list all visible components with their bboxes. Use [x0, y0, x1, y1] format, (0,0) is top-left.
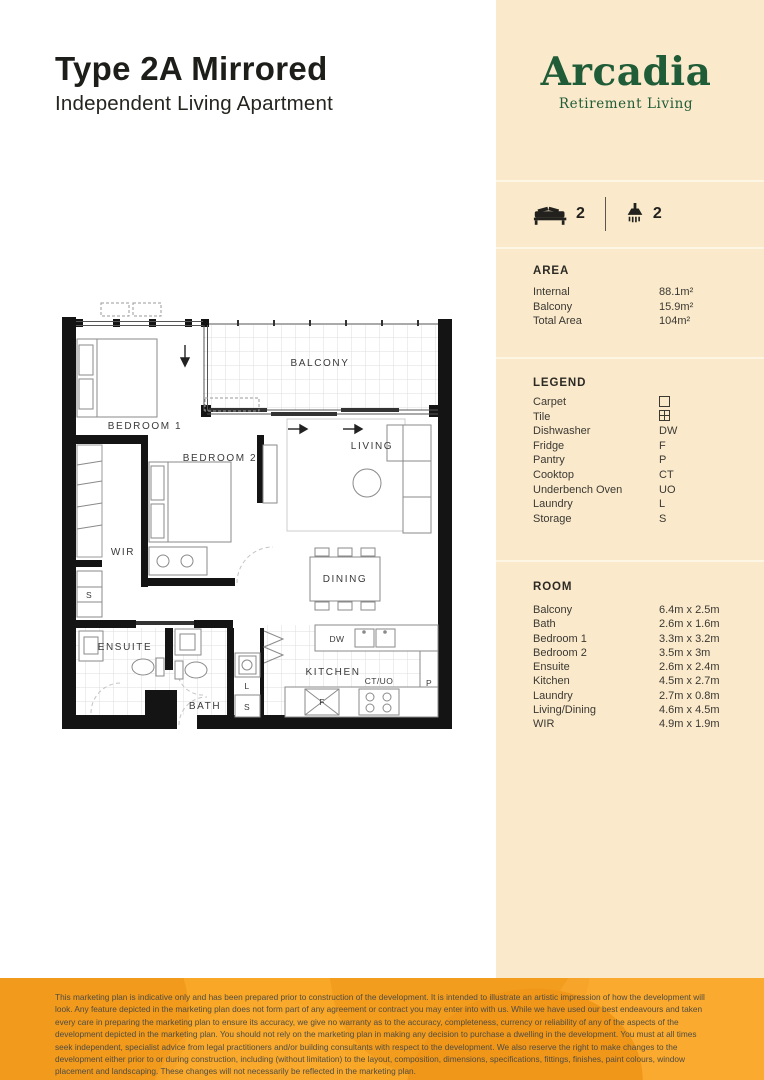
plan-label-bedroom2: BEDROOM 2	[183, 453, 257, 464]
brand-logo: Arcadia	[492, 50, 760, 94]
tile-swatch-icon	[659, 410, 670, 421]
plan-label-dw: DW	[330, 634, 345, 644]
disclaimer-text: This marketing plan is indicative only a…	[0, 978, 764, 1078]
plan-label-storage-wir: S	[86, 590, 92, 600]
area-row: Internal 88.1m²	[533, 285, 764, 300]
bed-bath-stats: 2 2	[496, 180, 764, 247]
room-row: WIR 4.9m x 1.9m	[533, 717, 764, 731]
plan-label-fridge: F	[319, 697, 325, 707]
plan-label-balcony: BALCONY	[291, 358, 350, 369]
footer: This marketing plan is indicative only a…	[0, 978, 764, 1080]
shower-icon	[624, 202, 646, 226]
room-row: Bath 2.6m x 1.6m	[533, 617, 764, 631]
room-row: Bedroom 2 3.5m x 3m	[533, 646, 764, 660]
room-row: Laundry 2.7m x 0.8m	[533, 689, 764, 703]
legend-row: Tile	[533, 410, 764, 425]
sidebar: Arcadia Retirement Living 2 2	[496, 0, 764, 978]
page-title: Type 2A Mirrored	[55, 50, 328, 88]
stats-divider	[605, 197, 606, 231]
area-row: Balcony 15.9m²	[533, 300, 764, 315]
plan-label-bath: BATH	[189, 701, 221, 712]
page-subtitle: Independent Living Apartment	[55, 92, 333, 116]
legend-row: Cooktop CT	[533, 468, 764, 483]
plan-label-storage-bath: S	[244, 702, 250, 712]
legend-section: LEGEND Carpet Tile	[496, 377, 764, 526]
plan-label-bedroom1: BEDROOM 1	[108, 421, 182, 432]
area-heading: AREA	[533, 265, 764, 277]
legend-row: Pantry P	[533, 453, 764, 468]
legend-row: Underbench Oven UO	[533, 483, 764, 498]
area-row: Total Area 104m²	[533, 314, 764, 329]
bath-count: 2	[653, 205, 662, 223]
legend-row: Storage S	[533, 512, 764, 527]
plan-label-pantry: P	[426, 678, 432, 688]
bed-icon	[533, 202, 569, 226]
floor-plan: BEDROOM 1 BALCONY BEDROOM 2 LIVING DININ…	[57, 295, 457, 735]
bed-count: 2	[576, 205, 585, 223]
plan-label-kitchen: KITCHEN	[305, 667, 360, 678]
legend-row: Dishwasher DW	[533, 424, 764, 439]
plan-label-laundry: L	[244, 681, 249, 691]
room-section: ROOM Balcony 6.4m x 2.5m Bath 2.6m x 1.6…	[496, 581, 764, 732]
room-heading: ROOM	[533, 581, 764, 593]
legend-row: Fridge F	[533, 439, 764, 454]
room-row: Ensuite 2.6m x 2.4m	[533, 660, 764, 674]
brand-tagline: Retirement Living	[492, 96, 760, 112]
plan-label-wir: WIR	[111, 547, 135, 558]
area-section: AREA Internal 88.1m² Balcony 15.9m² Tota…	[496, 265, 764, 329]
room-row: Balcony 6.4m x 2.5m	[533, 603, 764, 617]
plan-label-ctuo: CT/UO	[365, 676, 393, 686]
plan-label-dining: DINING	[323, 574, 368, 585]
plan-label-living: LIVING	[351, 441, 393, 452]
legend-row: Carpet	[533, 395, 764, 410]
legend-heading: LEGEND	[533, 377, 764, 389]
room-row: Living/Dining 4.6m x 4.5m	[533, 703, 764, 717]
room-row: Kitchen 4.5m x 2.7m	[533, 674, 764, 688]
room-row: Bedroom 1 3.3m x 3.2m	[533, 632, 764, 646]
carpet-swatch-icon	[659, 396, 670, 407]
plan-label-ensuite: ENSUITE	[98, 642, 153, 653]
legend-row: Laundry L	[533, 497, 764, 512]
